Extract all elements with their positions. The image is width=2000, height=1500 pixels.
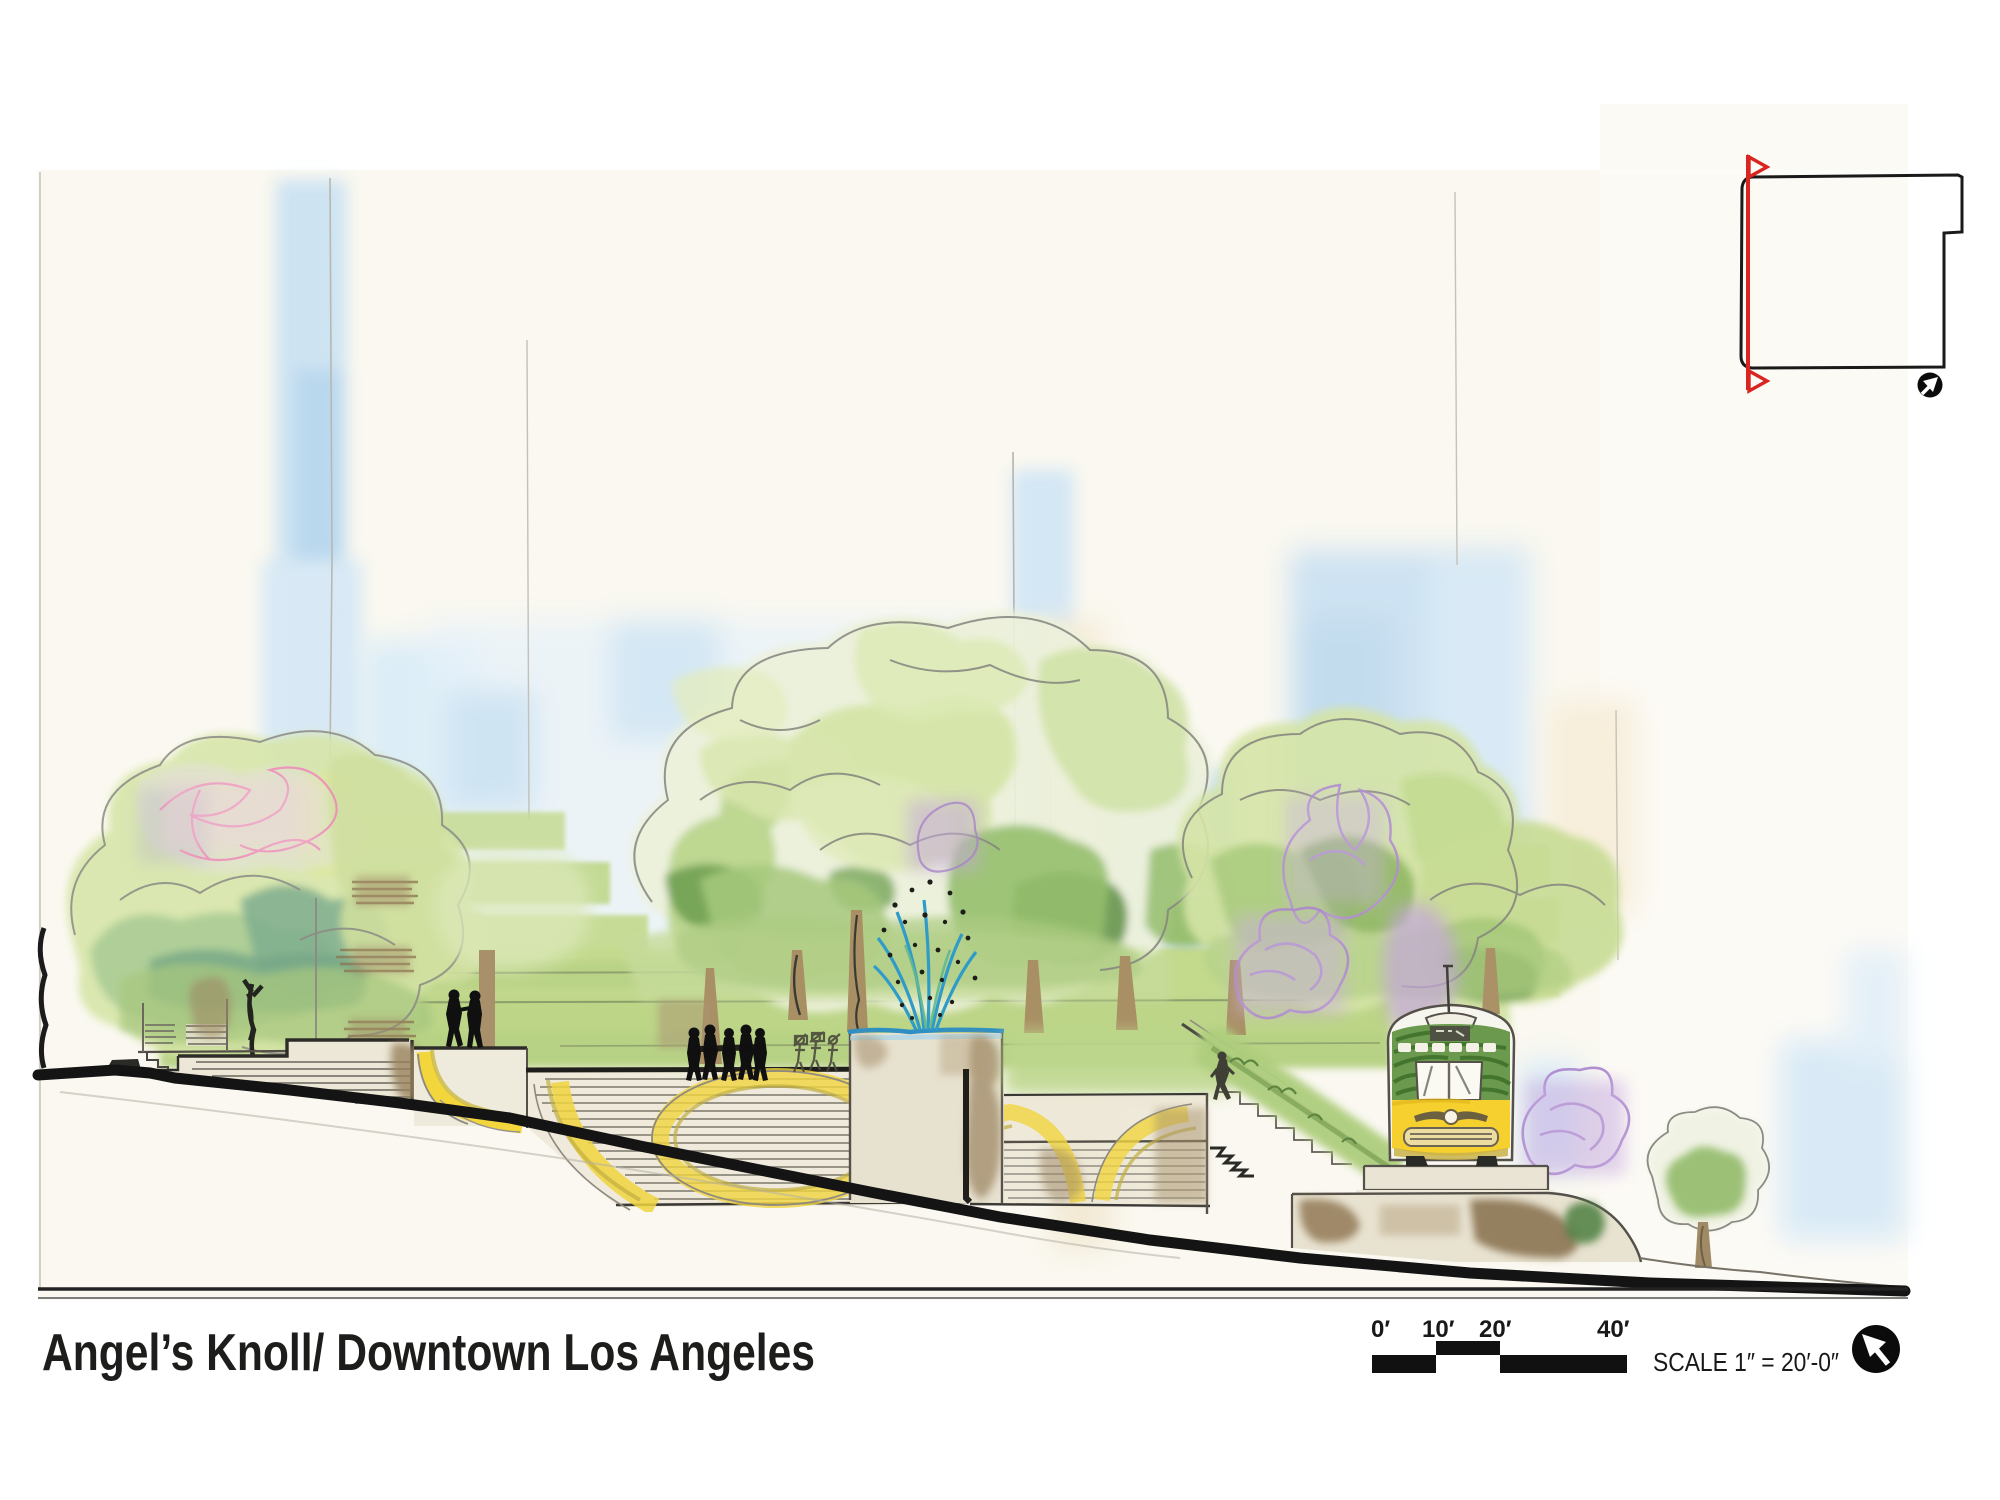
- svg-text:10′: 10′: [1422, 1316, 1455, 1343]
- svg-text:20′: 20′: [1479, 1316, 1512, 1343]
- svg-text:40′: 40′: [1597, 1316, 1630, 1343]
- svg-text:0′: 0′: [1371, 1316, 1390, 1343]
- svg-text:Angel’s Knoll/ Downtown Los An: Angel’s Knoll/ Downtown Los Angeles: [42, 1324, 815, 1382]
- svg-text:SCALE 1″ = 20′-0″: SCALE 1″ = 20′-0″: [1653, 1347, 1839, 1377]
